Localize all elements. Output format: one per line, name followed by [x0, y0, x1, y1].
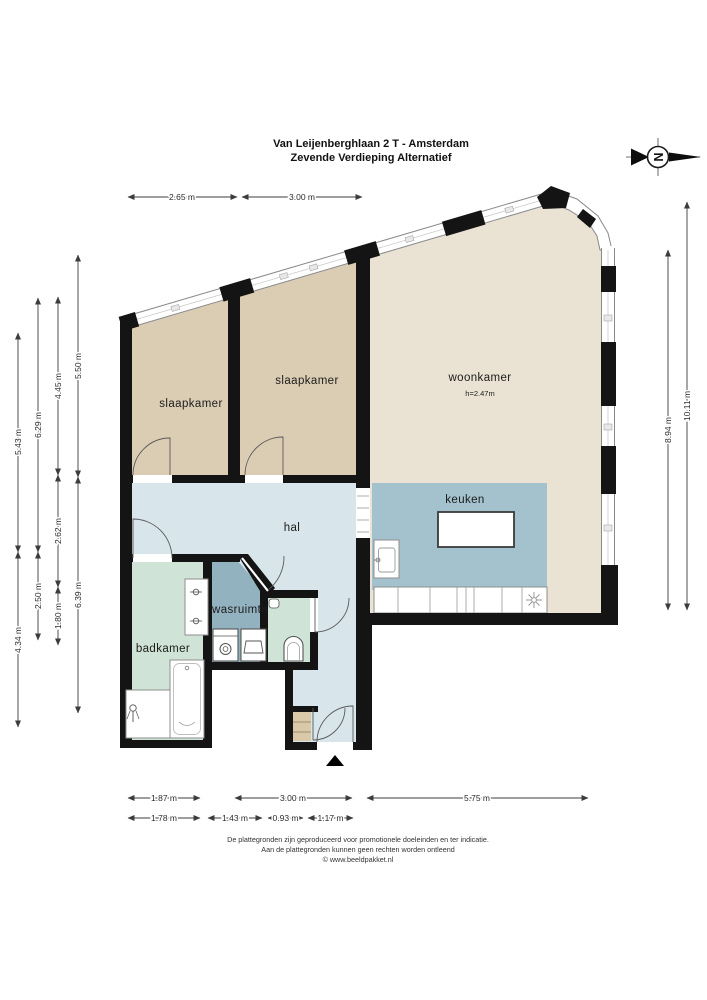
dim-left-250: 2.50 m — [33, 583, 43, 609]
label-badkamer: badkamer — [136, 643, 190, 655]
dim-left-629: 6.29 m — [33, 412, 43, 438]
entrance-marker-icon — [326, 755, 344, 766]
dim-right-1011: 10.11 m — [682, 391, 692, 421]
dim-bottom2-178: 1.78 m — [151, 813, 177, 823]
dim-left-639: 6.39 m — [73, 582, 83, 608]
floorplan-canvas: Van Leijenberghlaan 2 T - Amsterdam Zeve… — [0, 0, 707, 1000]
footer-line1: De plattegronden zijn geproduceerd voor … — [227, 835, 489, 844]
kitchen-counter — [374, 587, 547, 613]
dim-bottom1-187: 1.87 m — [151, 793, 177, 803]
north-compass-icon: N — [626, 138, 701, 176]
dim-bottom1-300: 3.00 m — [280, 793, 306, 803]
dim-top-2: 3.00 m — [289, 192, 315, 202]
bathtub — [170, 660, 204, 738]
dim-left-445: 4.45 m — [53, 373, 63, 399]
page-title-line2: Zevende Verdieping Alternatief — [291, 152, 452, 164]
dim-top-1: 2.65 m — [169, 192, 195, 202]
label-wasruimte: wasruimte — [211, 604, 268, 616]
footer-line3: © www.beeldpakket.nl — [323, 855, 394, 864]
footer-disclaimer: De plattegronden zijn geproduceerd voor … — [227, 835, 489, 864]
label-hal: hal — [284, 522, 301, 534]
label-slaapkamer-1: slaapkamer — [159, 398, 222, 410]
footer-line2: Aan de plattegronden kunnen geen rechten… — [261, 845, 454, 854]
corner-wall-chunk — [537, 186, 570, 209]
dim-left-543: 5.43 m — [13, 429, 23, 455]
dim-bottom1-575: 5.75 m — [464, 793, 490, 803]
compass-west-needle — [631, 149, 649, 166]
dim-left-434: 4.34 m — [13, 627, 23, 653]
compass-letter: N — [651, 152, 665, 161]
label-woonkamer-height: h=2.47m — [465, 389, 494, 398]
title-block: Van Leijenberghlaan 2 T - Amsterdam Zeve… — [273, 138, 469, 164]
washbasin-counter — [185, 579, 208, 635]
dim-bottom2-093: 0.93 m — [273, 813, 299, 823]
dim-right-894: 8.94 m — [663, 417, 673, 443]
page-title-line1: Van Leijenberghlaan 2 T - Amsterdam — [273, 138, 469, 150]
dim-bottom2-117: 1.17 m — [318, 813, 344, 823]
dim-bottom2-143: 1.43 m — [222, 813, 248, 823]
label-keuken: keuken — [445, 494, 484, 506]
hal-keuken-opening — [356, 488, 370, 538]
hand-basin — [269, 599, 279, 608]
dim-left-180: 1.80 m — [53, 603, 63, 629]
kitchen-island — [438, 512, 514, 547]
dim-left-262: 2.62 m — [53, 518, 63, 544]
toilet — [284, 637, 303, 662]
dim-left-550: 5.50 m — [73, 353, 83, 379]
label-woonkamer: woonkamer — [447, 372, 511, 384]
room-hal-floor — [130, 482, 358, 556]
label-slaapkamer-2: slaapkamer — [275, 375, 338, 387]
compass-north-needle — [669, 153, 701, 162]
meterkast-floor — [292, 711, 311, 741]
